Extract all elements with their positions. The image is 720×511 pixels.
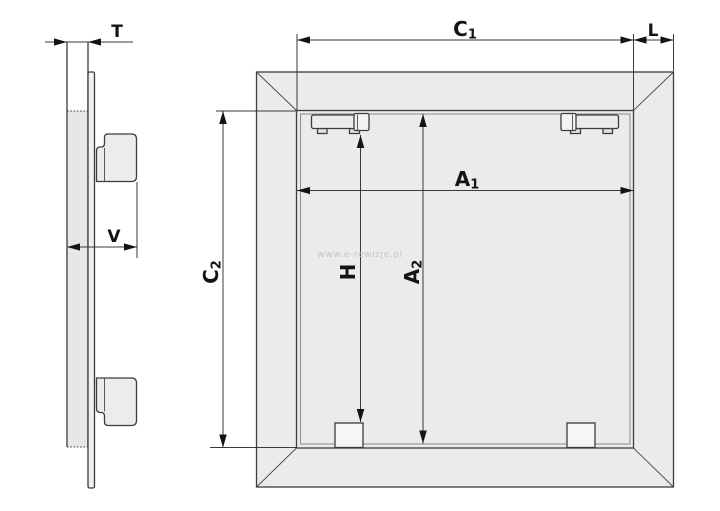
- drawing-svg: T V: [0, 0, 720, 511]
- arrowhead: [297, 36, 310, 43]
- dim-label-c2: C2: [199, 260, 225, 284]
- dim-label-h: H: [336, 264, 360, 281]
- hinge-block-bottom-right: [567, 423, 595, 448]
- dimension-t: T: [45, 22, 133, 46]
- dim-label-t: T: [111, 22, 123, 42]
- frame-outer: [257, 72, 674, 487]
- arrowhead: [661, 36, 674, 43]
- latch-side-bottom: [97, 378, 137, 426]
- arrowhead: [124, 243, 137, 250]
- dim-label-c1: C1: [453, 17, 477, 43]
- wall-section-fill: [67, 111, 88, 447]
- front-view: C1 L C2 A1 H: [199, 17, 674, 487]
- hinge-block-bottom-left: [335, 423, 363, 448]
- watermark: www.e-rewizje.pl: [317, 250, 402, 260]
- arrowhead: [634, 36, 647, 43]
- arrowhead: [219, 111, 227, 124]
- side-view: T V: [45, 22, 137, 488]
- dim-label-v: V: [107, 227, 121, 247]
- arrowhead: [54, 38, 67, 45]
- dim-label-l: L: [648, 21, 659, 41]
- technical-drawing-access-panel: T V: [0, 0, 720, 511]
- panel-flange-strip: [88, 72, 95, 488]
- latch-side-top: [97, 134, 137, 182]
- arrowhead: [88, 38, 101, 45]
- arrowhead: [219, 435, 227, 448]
- arrowhead: [621, 36, 634, 43]
